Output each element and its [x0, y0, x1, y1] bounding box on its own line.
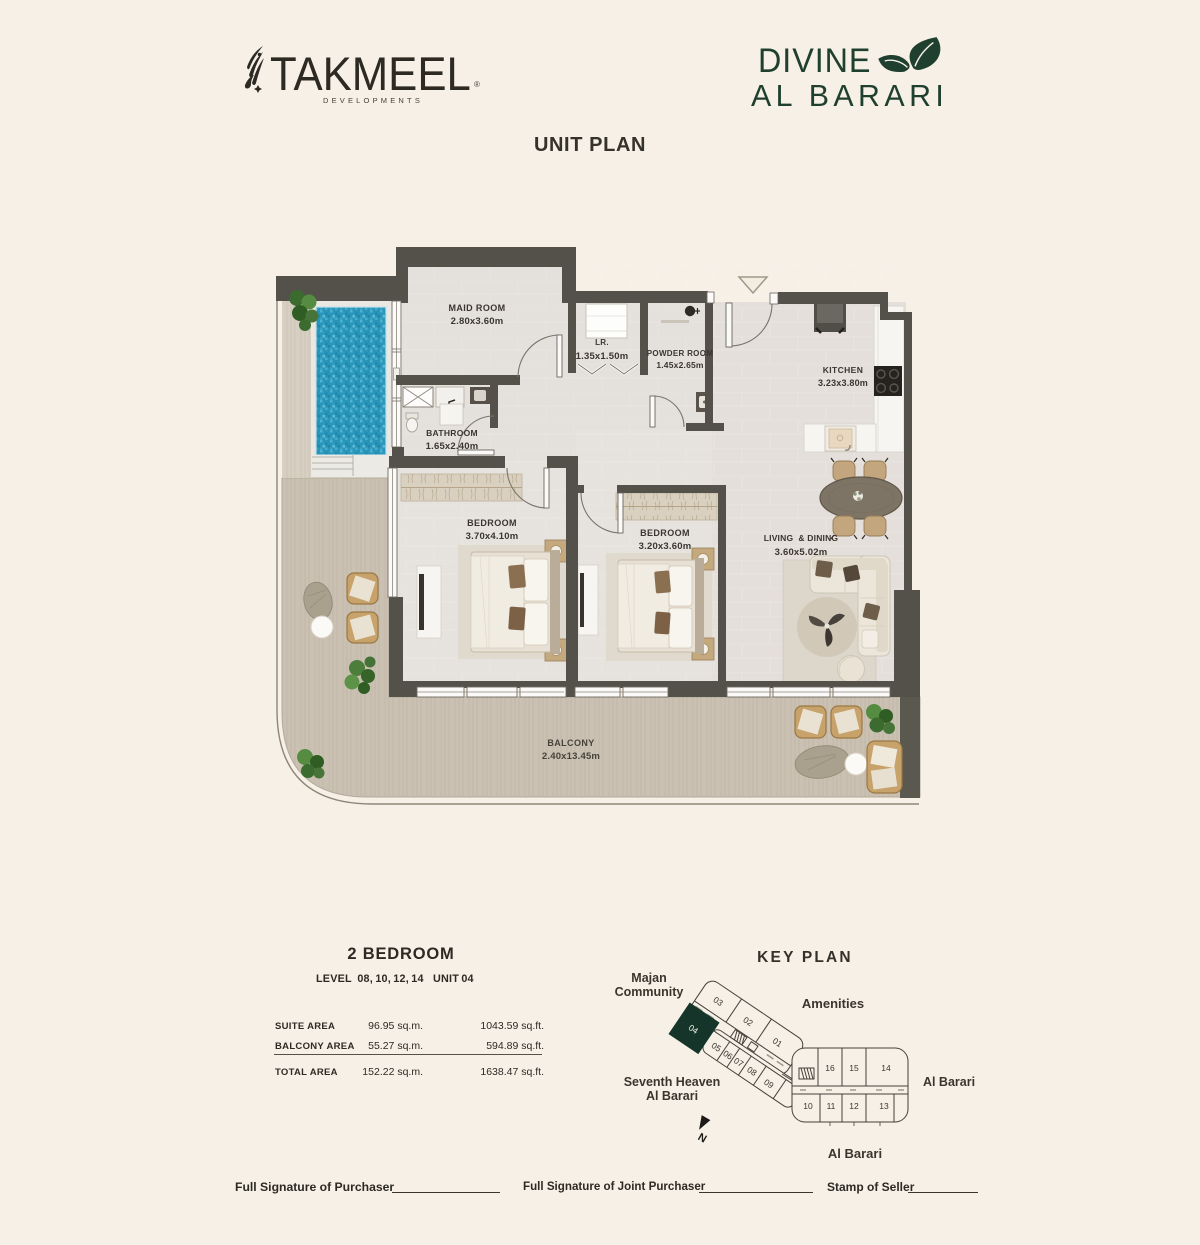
- svg-text:Al Barari: Al Barari: [828, 1146, 882, 1161]
- svg-text:15: 15: [849, 1063, 859, 1073]
- svg-text:11: 11: [827, 1101, 836, 1111]
- svg-text:KEY PLAN: KEY PLAN: [757, 949, 853, 966]
- svg-text:Majan: Majan: [631, 971, 666, 985]
- svg-text:MAID ROOM: MAID ROOM: [448, 303, 505, 313]
- svg-text:Seventh Heaven: Seventh Heaven: [624, 1075, 721, 1089]
- svg-text:POWDER ROOM: POWDER ROOM: [647, 349, 713, 358]
- svg-text:10: 10: [803, 1101, 813, 1111]
- svg-text:Community: Community: [615, 985, 684, 999]
- svg-text:Al Barari: Al Barari: [923, 1075, 975, 1089]
- svg-text:LIVING & DINING: LIVING & DINING: [764, 533, 839, 543]
- svg-text:N: N: [696, 1131, 709, 1145]
- svg-text:2.40x13.45m: 2.40x13.45m: [542, 751, 600, 762]
- svg-text:3.70x4.10m: 3.70x4.10m: [466, 531, 519, 542]
- svg-text:BATHROOM: BATHROOM: [426, 428, 478, 438]
- svg-text:1.35x1.50m: 1.35x1.50m: [576, 351, 629, 362]
- svg-text:BALCONY: BALCONY: [547, 738, 594, 748]
- svg-text:BEDROOM: BEDROOM: [467, 518, 517, 528]
- svg-text:BEDROOM: BEDROOM: [640, 528, 690, 538]
- svg-text:14: 14: [881, 1063, 891, 1073]
- svg-text:13: 13: [879, 1101, 889, 1111]
- svg-text:16: 16: [825, 1063, 835, 1073]
- svg-text:LR.: LR.: [595, 338, 609, 347]
- svg-text:3.20x3.60m: 3.20x3.60m: [639, 541, 692, 552]
- svg-text:3.60x5.02m: 3.60x5.02m: [775, 547, 828, 558]
- svg-text:12: 12: [849, 1101, 859, 1111]
- svg-text:3.23x3.80m: 3.23x3.80m: [818, 378, 868, 388]
- svg-text:Amenities: Amenities: [802, 996, 864, 1011]
- svg-text:1.65x2.40m: 1.65x2.40m: [426, 441, 479, 452]
- svg-text:1.45x2.65m: 1.45x2.65m: [656, 360, 704, 370]
- svg-text:KITCHEN: KITCHEN: [823, 365, 864, 375]
- svg-text:2.80x3.60m: 2.80x3.60m: [451, 316, 504, 327]
- svg-text:Al Barari: Al Barari: [646, 1089, 698, 1103]
